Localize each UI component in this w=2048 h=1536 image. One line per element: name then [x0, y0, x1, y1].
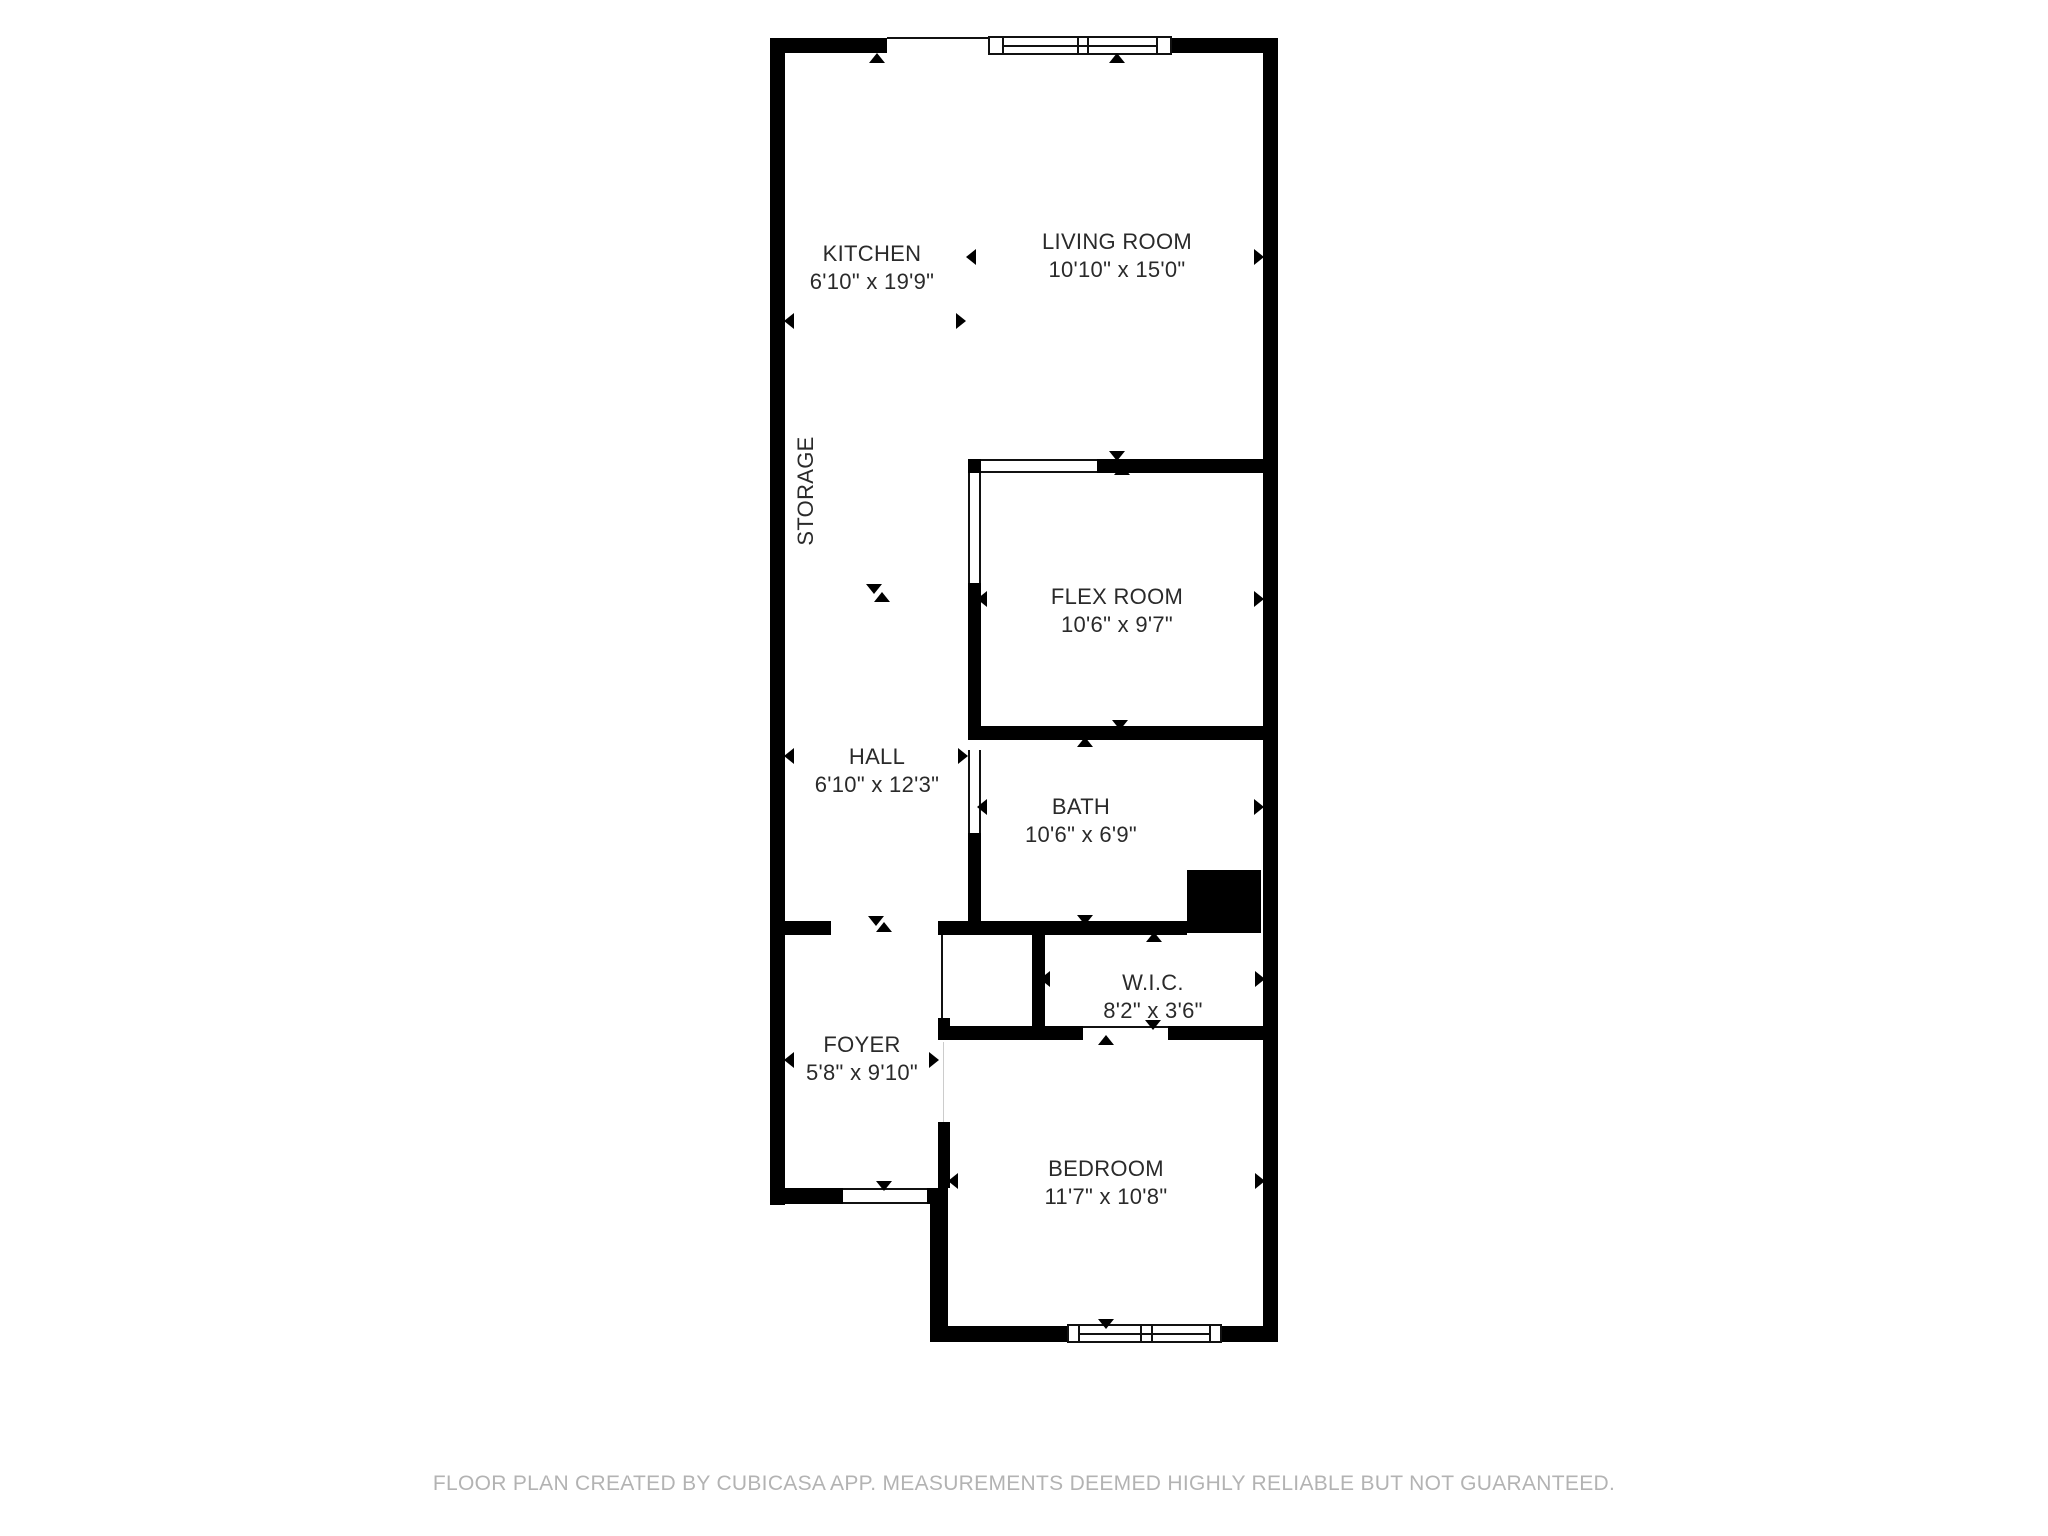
- bedroom-left-wall: [930, 1188, 948, 1342]
- exterior-wall-top-left: [770, 38, 887, 53]
- foyer-closet-opening: [941, 935, 943, 1018]
- measure-arrow-up-icon: [1098, 1035, 1114, 1045]
- hall-bath-wall: [968, 833, 981, 935]
- shaft-block: [1187, 870, 1261, 933]
- hall-flex-opening: [968, 473, 981, 583]
- foyer-bottom-wall: [770, 1188, 843, 1204]
- wic-bottom-wall-right: [1168, 1026, 1263, 1040]
- room-name: KITCHEN: [810, 240, 935, 268]
- room-name: FLEX ROOM: [1051, 583, 1183, 611]
- measure-arrow-up-icon: [874, 592, 890, 602]
- window-pane-line: [1078, 1333, 1211, 1335]
- room-dimensions: 10'10" x 15'0": [1042, 256, 1192, 284]
- wic-bottom-wall-left: [938, 1026, 1083, 1040]
- bedroom-bottom-wall-left: [948, 1326, 1067, 1342]
- measure-arrow-down-icon: [1112, 720, 1128, 730]
- measure-arrow-right-icon: [1254, 799, 1264, 815]
- room-name: W.I.C.: [1103, 969, 1203, 997]
- measure-arrow-up-icon: [1114, 465, 1130, 475]
- measure-arrow-up-icon: [1109, 53, 1125, 63]
- foyer-bedroom-doorway: [943, 1042, 944, 1122]
- exterior-wall-right: [1263, 38, 1278, 1342]
- attribution-text: FLOOR PLAN CREATED BY CUBICASA APP. MEAS…: [433, 1472, 1615, 1496]
- measure-arrow-up-icon: [869, 53, 885, 63]
- room-name: FOYER: [806, 1031, 918, 1059]
- bedroom-bottom-wall-right: [1222, 1326, 1263, 1342]
- room-label-bath: BATH 10'6" x 6'9": [1025, 793, 1137, 849]
- room-label-bedroom: BEDROOM 11'7" x 10'8": [1045, 1155, 1168, 1211]
- kitchen-top-opening: [887, 37, 990, 39]
- measure-arrow-right-icon: [1254, 249, 1264, 265]
- room-dimensions: 6'10" x 12'3": [815, 771, 940, 799]
- living-flex-opening: [981, 459, 1097, 473]
- room-dimensions: 8'2" x 3'6": [1103, 997, 1203, 1025]
- floor-plan-canvas: KITCHEN 6'10" x 19'9" LIVING ROOM 10'10"…: [0, 0, 2048, 1536]
- bedroom-window: [1067, 1324, 1222, 1343]
- room-label-hall: HALL 6'10" x 12'3": [815, 743, 940, 799]
- measure-arrow-left-icon: [948, 1173, 958, 1189]
- living-room-window: [988, 36, 1172, 55]
- room-label-flex-room: FLEX ROOM 10'6" x 9'7": [1051, 583, 1183, 639]
- measure-arrow-left-icon: [784, 748, 794, 764]
- measure-arrow-left-icon: [977, 591, 987, 607]
- measure-arrow-right-icon: [1255, 971, 1265, 987]
- measure-arrow-right-icon: [958, 748, 968, 764]
- room-label-kitchen: KITCHEN 6'10" x 19'9": [810, 240, 935, 296]
- room-label-living-room: LIVING ROOM 10'10" x 15'0": [1042, 228, 1192, 284]
- window-pane-line: [1002, 45, 1158, 47]
- measure-arrow-down-icon: [876, 1181, 892, 1191]
- measure-arrow-right-icon: [1255, 1173, 1265, 1189]
- measure-arrow-up-icon: [1146, 932, 1162, 942]
- room-dimensions: 6'10" x 19'9": [810, 268, 935, 296]
- measure-arrow-left-icon: [784, 1052, 794, 1068]
- measure-arrow-right-icon: [929, 1052, 939, 1068]
- measure-arrow-down-icon: [1109, 451, 1125, 461]
- room-dimensions: 10'6" x 9'7": [1051, 611, 1183, 639]
- room-dimensions: 5'8" x 9'10": [806, 1059, 918, 1087]
- exterior-wall-left: [770, 38, 785, 1205]
- room-label-storage: STORAGE: [792, 436, 820, 545]
- room-name: BATH: [1025, 793, 1137, 821]
- measure-arrow-down-icon: [1077, 915, 1093, 925]
- measure-arrow-left-icon: [977, 799, 987, 815]
- room-label-wic: W.I.C. 8'2" x 3'6": [1103, 969, 1203, 1025]
- measure-arrow-left-icon: [966, 249, 976, 265]
- hall-foyer-wall: [785, 921, 831, 935]
- measure-arrow-right-icon: [956, 313, 966, 329]
- measure-arrow-down-icon: [1098, 1319, 1114, 1329]
- room-name: BEDROOM: [1045, 1155, 1168, 1183]
- measure-arrow-up-icon: [876, 922, 892, 932]
- flex-top-corner: [968, 459, 981, 473]
- measure-arrow-up-icon: [1077, 737, 1093, 747]
- room-name: LIVING ROOM: [1042, 228, 1192, 256]
- room-dimensions: 10'6" x 6'9": [1025, 821, 1137, 849]
- room-dimensions: 11'7" x 10'8": [1045, 1183, 1168, 1211]
- bath-door-opening: [968, 750, 981, 833]
- room-label-foyer: FOYER 5'8" x 9'10": [806, 1031, 918, 1087]
- measure-arrow-left-icon: [1040, 971, 1050, 987]
- room-name: HALL: [815, 743, 940, 771]
- measure-arrow-left-icon: [784, 313, 794, 329]
- measure-arrow-right-icon: [1254, 591, 1264, 607]
- room-name: STORAGE: [792, 436, 820, 545]
